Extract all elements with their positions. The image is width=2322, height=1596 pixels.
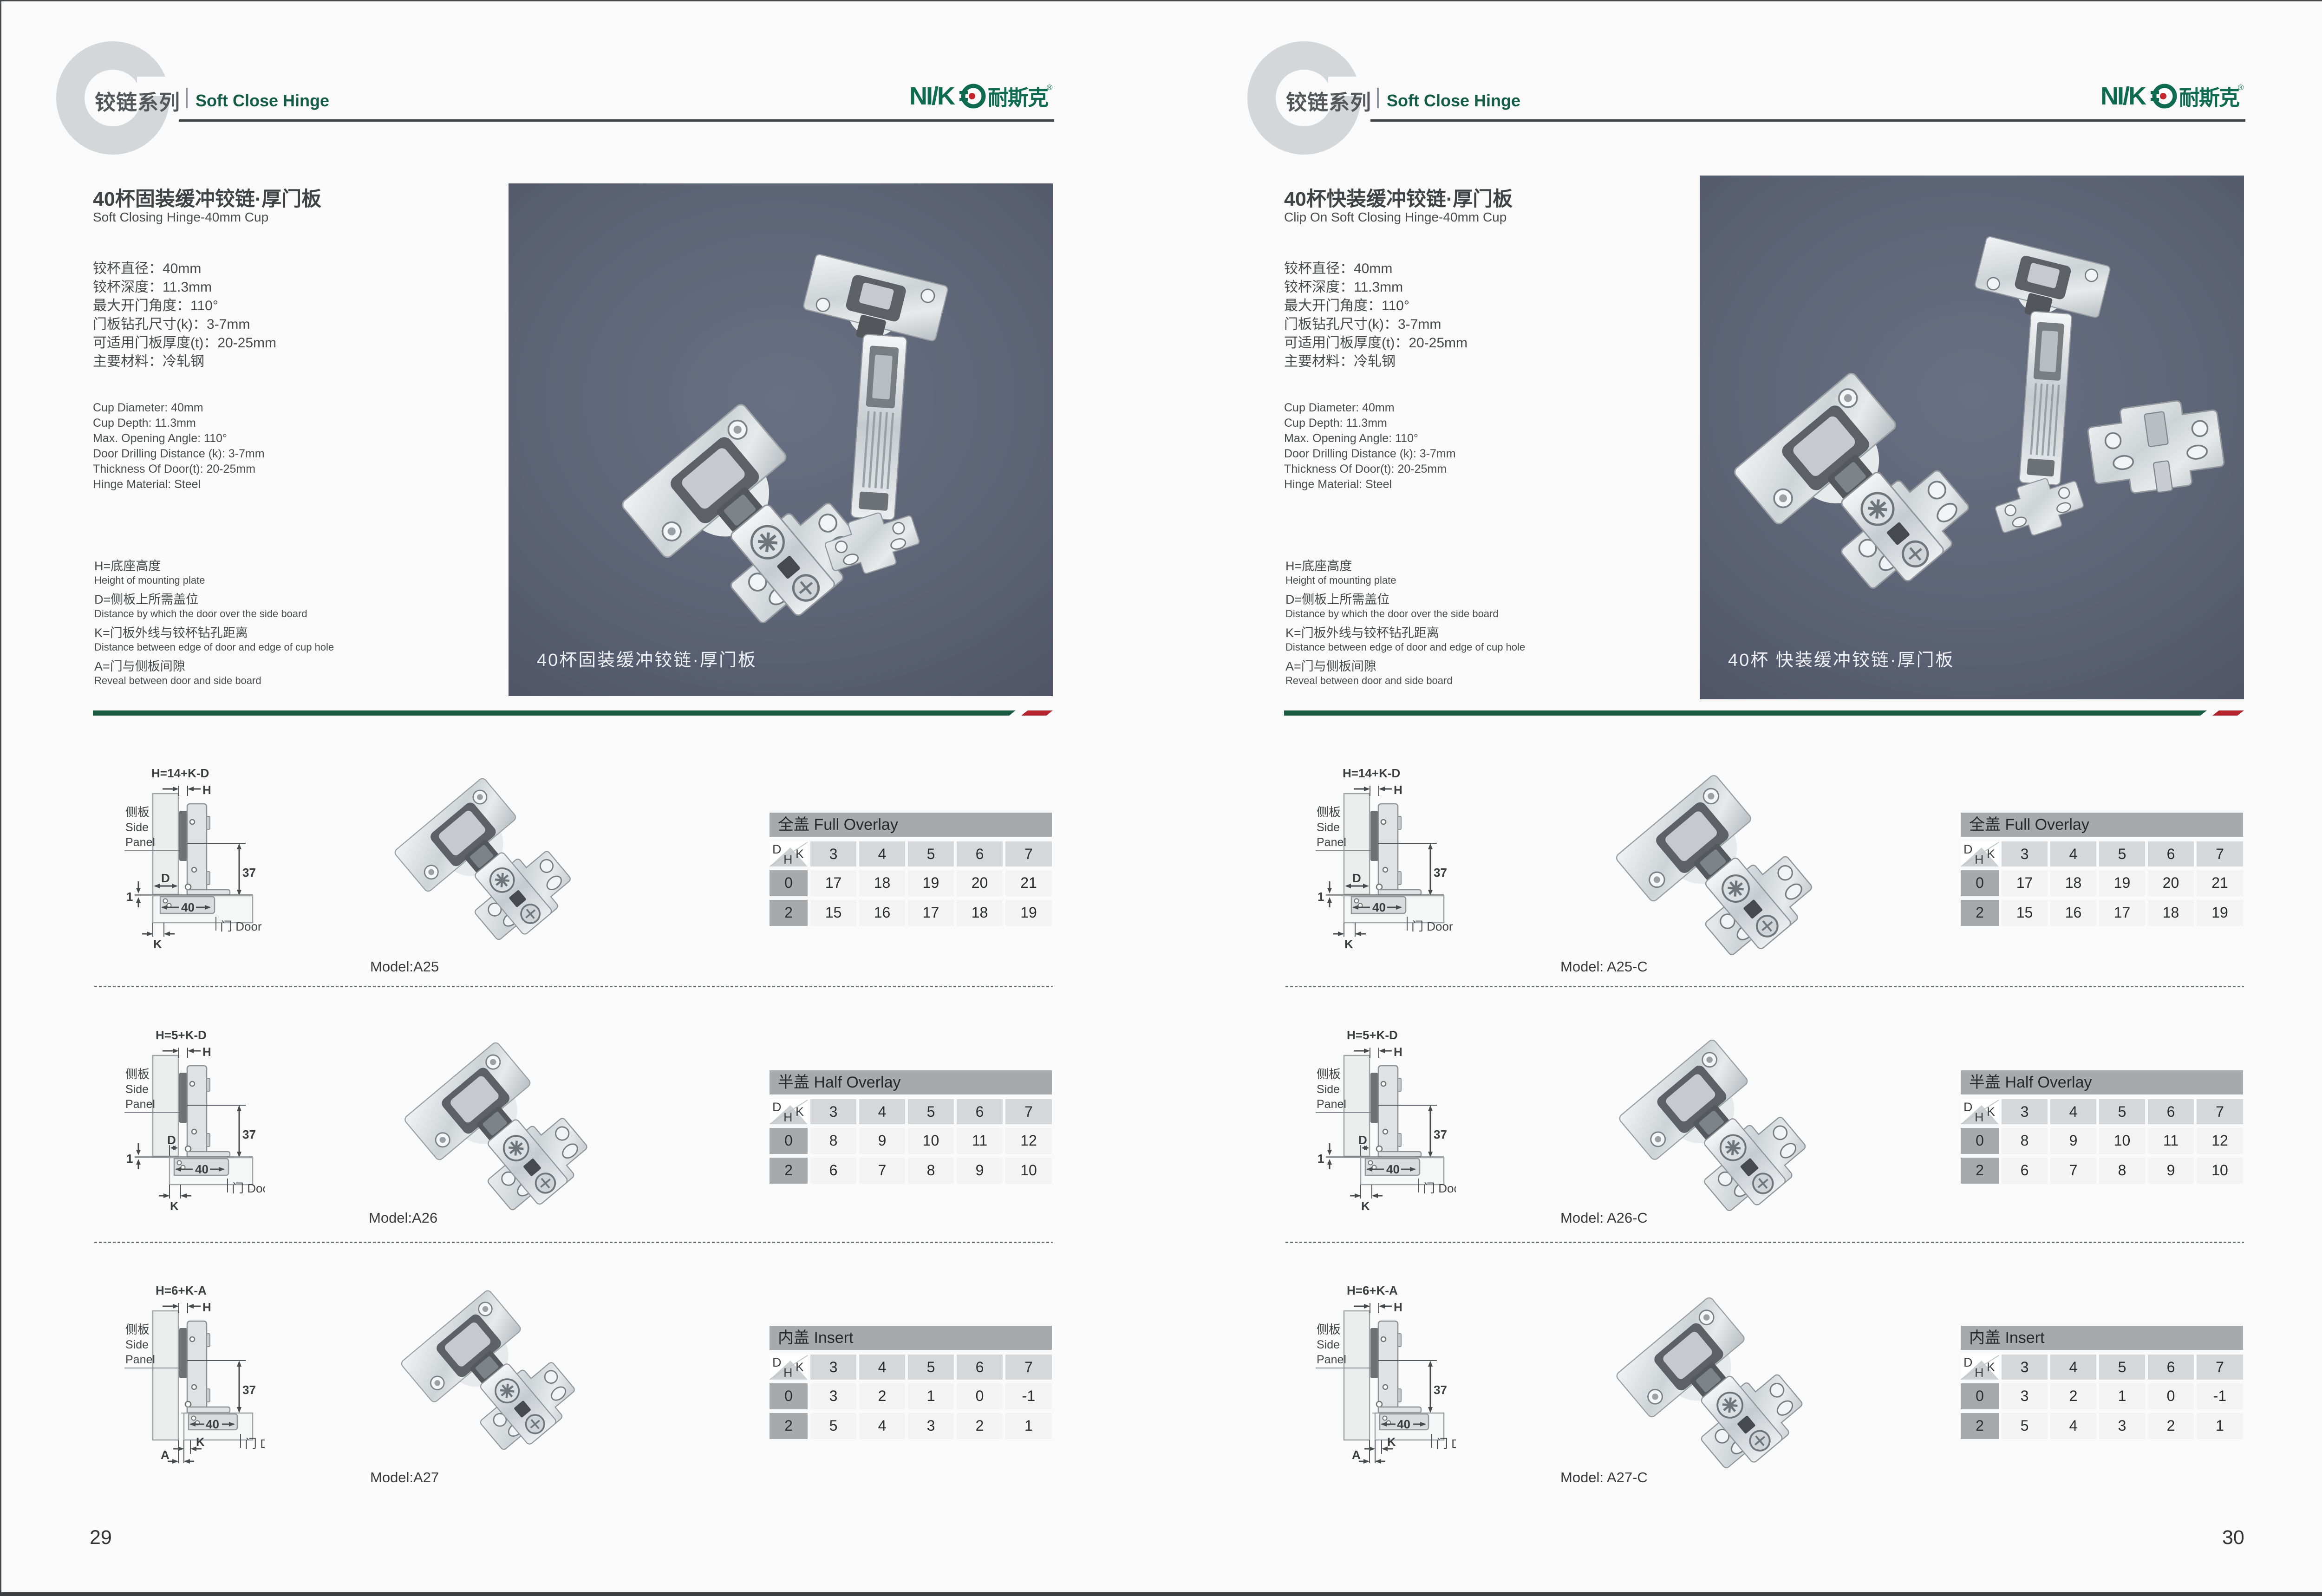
svg-text:耐斯克: 耐斯克: [988, 86, 1048, 110]
svg-text:NI/K: NI/K: [910, 83, 955, 110]
svg-text:®: ®: [1047, 83, 1053, 92]
svg-text:®: ®: [2238, 83, 2244, 92]
svg-text:耐斯克: 耐斯克: [2179, 86, 2239, 110]
svg-text:NI/K: NI/K: [2101, 83, 2146, 110]
